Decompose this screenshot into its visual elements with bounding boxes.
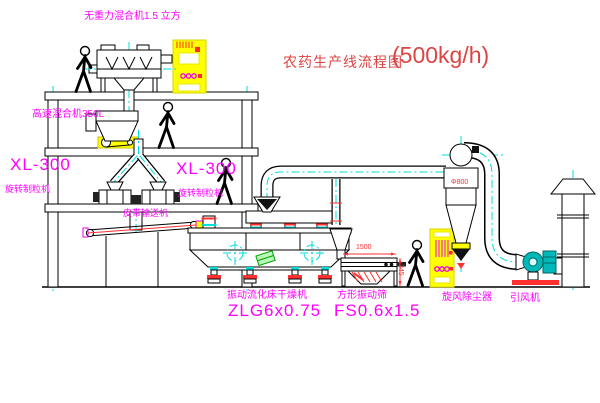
belt-conveyor-machine [83, 208, 207, 287]
label-granulator-left-model: XL-300 [10, 156, 71, 173]
label-sieve-model: FS0.6x1.5 [334, 302, 421, 319]
discharge-chute [113, 156, 162, 183]
control-cabinet-top [173, 40, 206, 93]
label-draft-fan: 引风机 [510, 294, 540, 304]
label-sieve-name: 方形振动筛 [337, 291, 387, 301]
dimension-sieve-height: 345 [397, 264, 404, 276]
gravity-mixer-machine [83, 42, 176, 118]
diagram-title: 农药生产线流程图 [283, 52, 403, 72]
person-icon [408, 241, 423, 286]
control-cabinet-bottom [430, 229, 454, 287]
label-dryer-name: 振动流化床干燥机 [227, 291, 307, 301]
granulator-left-machine [93, 182, 136, 204]
label-granulator-right-name: 旋转制粒机 [178, 189, 223, 198]
label-gravity-mixer: 无重力混合机1.5 立方 [84, 12, 181, 22]
person-icon [159, 103, 174, 148]
label-granulator-right-model: XL-300 [176, 160, 237, 177]
dimension-sieve-length: 1500 [356, 244, 372, 251]
label-belt-conveyor: 皮带输送机 [123, 209, 168, 218]
label-granulator-left-name: 旋转制粒机 [5, 185, 50, 194]
dimension-cyclone-diameter: Φ800 [451, 179, 468, 186]
diagram-capacity: (500kg/h) [392, 42, 489, 69]
vibrating-sieve-machine [330, 229, 406, 286]
label-cyclone: 旋风除尘器 [442, 293, 492, 303]
diagram-canvas: 农药生产线流程图 (500kg/h) 无重力混合机1.5 立方 高速混合机350… [0, 0, 600, 403]
label-high-speed-mixer: 高速混合机350L [32, 110, 104, 120]
draft-fan-machine [512, 251, 564, 285]
label-dryer-model: ZLG6x0.75 [228, 302, 321, 319]
granulator-right-machine [136, 182, 180, 204]
